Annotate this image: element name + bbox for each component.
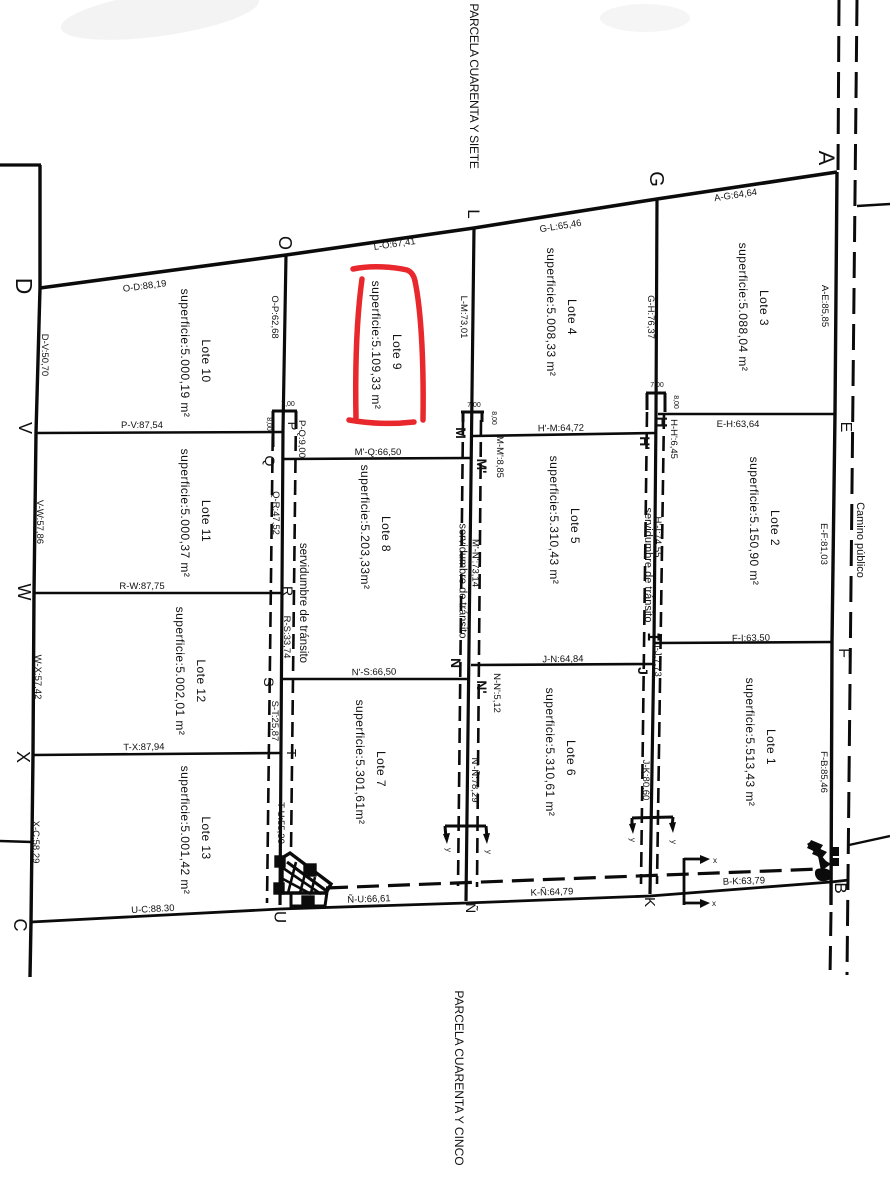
- svg-text:E-H:63,64: E-H:63,64: [717, 419, 760, 430]
- svg-text:S: S: [261, 677, 277, 686]
- svg-text:N'-Ñ:78,29: N'-Ñ:78,29: [469, 757, 480, 802]
- svg-text:B-K:63,79: B-K:63,79: [723, 875, 766, 887]
- svg-text:U: U: [271, 911, 290, 923]
- svg-text:R: R: [280, 586, 296, 596]
- svg-text:L: L: [464, 209, 483, 218]
- svg-text:L-M:73,01: L-M:73,01: [458, 296, 469, 339]
- svg-text:F-B:85,46: F-B:85,46: [818, 751, 829, 793]
- svg-text:M'-Q:66,50: M'-Q:66,50: [355, 447, 402, 458]
- svg-text:Camino público: Camino público: [854, 502, 866, 578]
- svg-text:F: F: [835, 648, 852, 658]
- svg-text:K-Ñ:64,79: K-Ñ:64,79: [530, 886, 573, 898]
- svg-text:O-P:62,68: O-P:62,68: [269, 295, 280, 338]
- svg-text:8,00: 8,00: [672, 395, 679, 409]
- svg-text:F-I:63,50: F-I:63,50: [732, 633, 770, 645]
- svg-text:V-W:57,86: V-W:57,86: [34, 500, 45, 544]
- svg-text:y: y: [669, 840, 678, 844]
- svg-text:Q: Q: [262, 456, 278, 467]
- svg-text:x: x: [712, 899, 716, 908]
- svg-text:G-H:76,37: G-H:76,37: [645, 295, 656, 339]
- svg-text:X: X: [13, 751, 33, 763]
- svg-text:servidumbre de tránsito: servidumbre de tránsito: [457, 524, 469, 639]
- svg-text:7,00: 7,00: [650, 382, 664, 389]
- svg-text:8,00: 8,00: [490, 411, 497, 425]
- svg-text:V: V: [15, 422, 35, 434]
- svg-text:H: H: [653, 417, 670, 428]
- svg-text:PARCELA CUARENTA Y CINCO: PARCELA CUARENTA Y CINCO: [452, 990, 466, 1165]
- svg-text:y: y: [484, 850, 493, 854]
- svg-text:T-X:87,94: T-X:87,94: [123, 742, 164, 754]
- svg-text:C: C: [10, 919, 30, 932]
- svg-text:8,00: 8,00: [265, 417, 272, 431]
- svg-text:H': H': [637, 436, 653, 449]
- svg-text:y: y: [444, 848, 453, 852]
- svg-text:M': M': [474, 459, 490, 474]
- svg-text:N: N: [448, 658, 464, 668]
- svg-text:D-V:50,70: D-V:50,70: [39, 334, 50, 376]
- svg-text:J-N:64,84: J-N:64,84: [542, 654, 583, 666]
- svg-text:G: G: [645, 171, 667, 187]
- svg-text:T: T: [284, 749, 299, 757]
- svg-text:N': N': [474, 680, 490, 693]
- svg-text:H-H':6,45: H-H':6,45: [668, 419, 679, 459]
- svg-text:J: J: [635, 667, 651, 675]
- svg-text:I-J:7,73: I-J:7,73: [652, 645, 663, 677]
- svg-text:A-E:85,85: A-E:85,85: [819, 285, 830, 327]
- svg-text:T-U:55,30: T-U:55,30: [275, 802, 286, 844]
- svg-text:y: y: [628, 838, 637, 842]
- svg-text:S-T:25,87: S-T:25,87: [269, 701, 280, 742]
- svg-text:E-F:81,03: E-F:81,03: [818, 523, 829, 565]
- svg-text:N'-S:66,50: N'-S:66,50: [352, 667, 397, 679]
- svg-text:R-S:33,74: R-S:33,74: [281, 616, 292, 659]
- svg-text:O: O: [275, 236, 295, 250]
- svg-text:B: B: [831, 882, 850, 893]
- svg-text:P-Q:9,00: P-Q:9,00: [296, 420, 307, 458]
- svg-text:K: K: [641, 897, 658, 907]
- svg-text:Q-R:47,52: Q-R:47,52: [270, 491, 281, 535]
- svg-text:U-C:88.30: U-C:88.30: [131, 903, 175, 916]
- svg-text:P-V:87,54: P-V:87,54: [121, 420, 163, 431]
- svg-text:Ñ: Ñ: [463, 903, 479, 913]
- svg-text:J-K:80,60: J-K:80,60: [640, 760, 651, 801]
- svg-text:W-X:57,42: W-X:57,42: [32, 655, 43, 700]
- svg-text:D: D: [11, 278, 37, 295]
- svg-text:X-C:58,29: X-C:58,29: [30, 821, 41, 864]
- svg-text:A: A: [814, 151, 839, 166]
- svg-text:servidumbre de tránsito: servidumbre de tránsito: [297, 543, 309, 663]
- svg-text:7,00: 7,00: [281, 401, 295, 408]
- svg-text:N-N':5,12: N-N':5,12: [491, 673, 502, 713]
- svg-text:R-W:87,75: R-W:87,75: [119, 581, 164, 592]
- svg-text:M'-N':73,14: M'-N':73,14: [470, 539, 481, 587]
- svg-text:PARCELA CUARENTA Y SIETE: PARCELA CUARENTA Y SIETE: [467, 3, 481, 168]
- svg-text:H'-M:64,72: H'-M:64,72: [538, 423, 584, 435]
- svg-text:W: W: [14, 584, 34, 601]
- svg-text:M-M':8,85: M-M':8,85: [494, 436, 505, 478]
- svg-text:7,00: 7,00: [467, 402, 481, 409]
- svg-text:x: x: [713, 856, 717, 865]
- svg-text:servidumbre de tránsito: servidumbre de tránsito: [642, 508, 654, 623]
- svg-text:M: M: [453, 427, 469, 439]
- svg-text:Ñ-U:66,61: Ñ-U:66,61: [347, 893, 391, 906]
- svg-text:E: E: [837, 422, 854, 433]
